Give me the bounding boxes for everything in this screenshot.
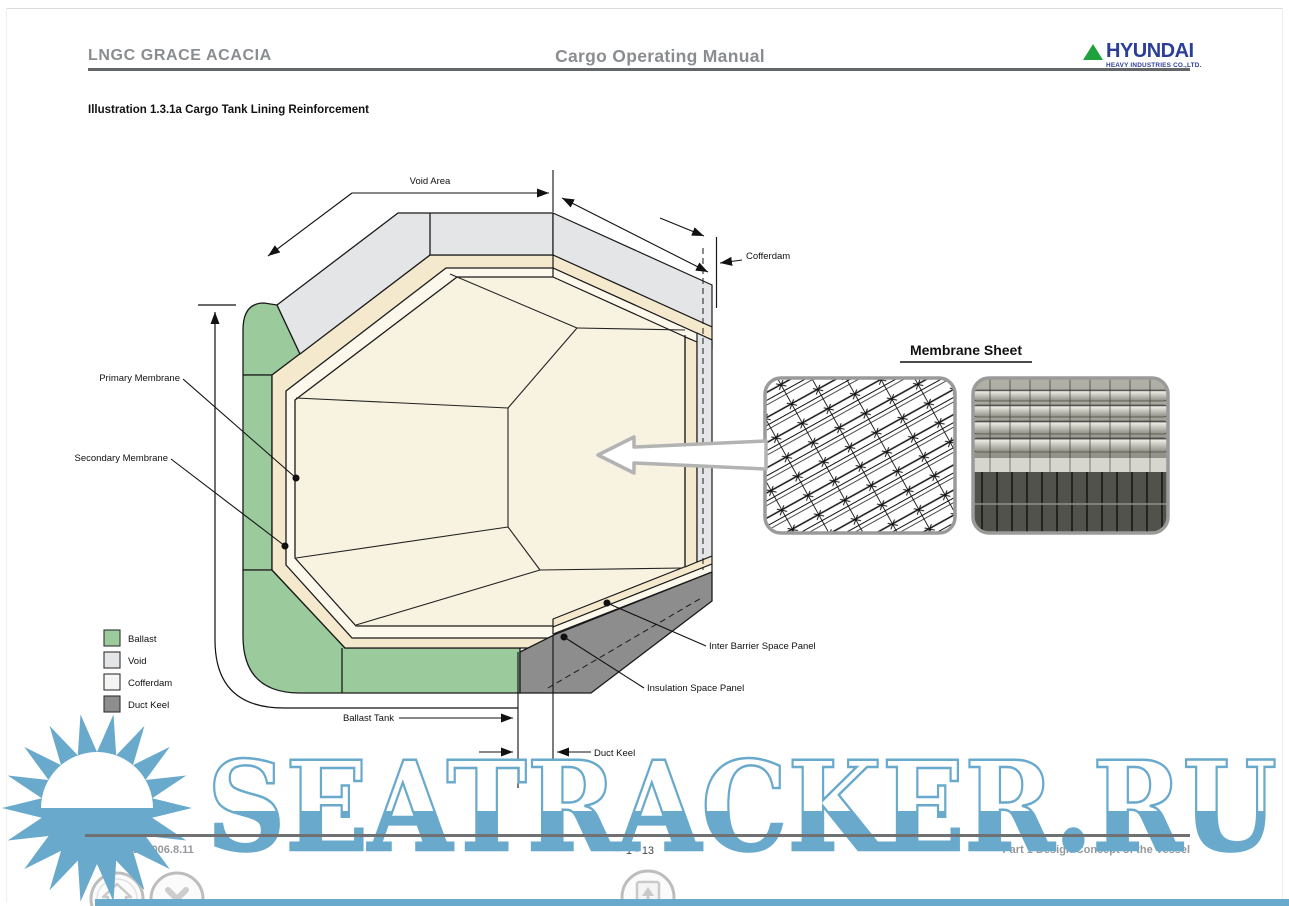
close-button[interactable] xyxy=(151,873,203,906)
page-up-icon xyxy=(637,882,659,906)
nav-icons xyxy=(0,0,1289,906)
page-up-button[interactable] xyxy=(622,871,674,906)
footer-divider xyxy=(85,834,1190,837)
home-button[interactable] xyxy=(91,873,143,906)
